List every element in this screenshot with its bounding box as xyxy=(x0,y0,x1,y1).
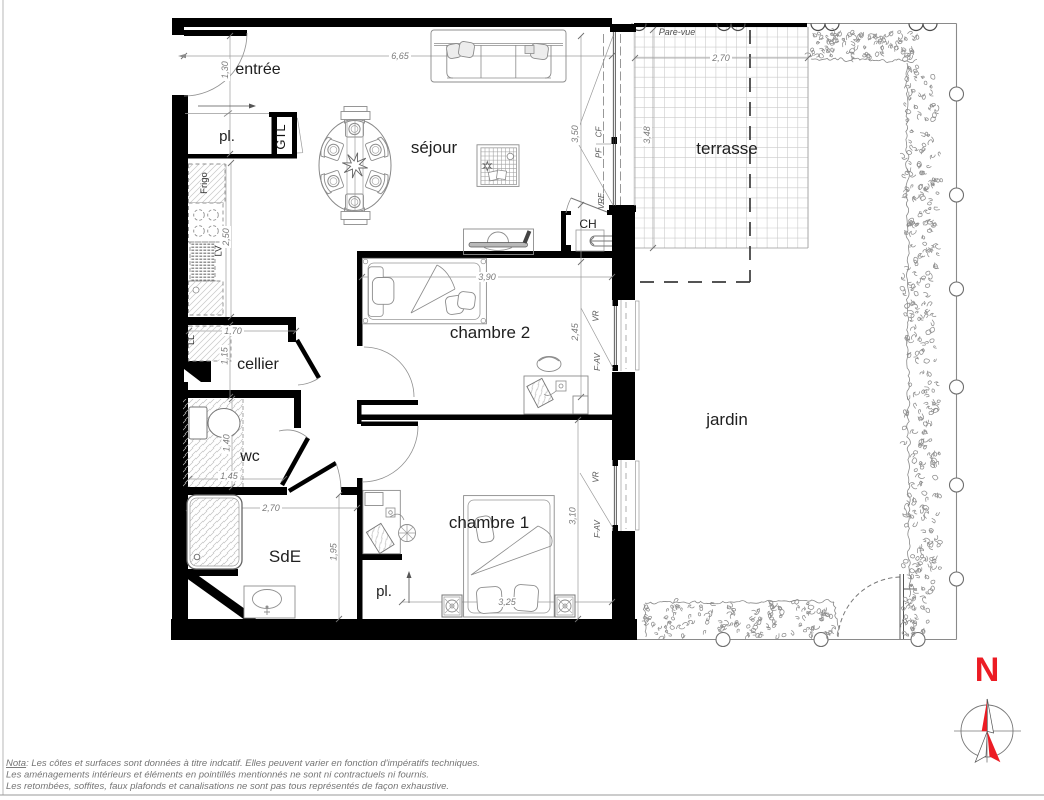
svg-text:cellier: cellier xyxy=(237,356,279,373)
svg-text:chambre 1: chambre 1 xyxy=(449,513,529,532)
svg-text:chambre 2: chambre 2 xyxy=(450,323,530,342)
svg-text:VRE: VRE xyxy=(597,192,606,209)
svg-text:2,70: 2,70 xyxy=(261,503,280,513)
svg-text:3,90: 3,90 xyxy=(478,272,496,282)
svg-text:jardin: jardin xyxy=(705,410,748,429)
svg-text:1,45: 1,45 xyxy=(220,471,239,481)
svg-text:PF: PF xyxy=(595,147,604,158)
svg-text:F-AV: F-AV xyxy=(593,519,602,537)
svg-text:N: N xyxy=(975,651,1000,689)
svg-text:CF: CF xyxy=(595,126,604,138)
svg-text:1,30: 1,30 xyxy=(220,61,230,79)
svg-text:Frigo: Frigo xyxy=(199,172,210,194)
svg-text:Les aménagements intérieurs et: Les aménagements intérieurs et éléments … xyxy=(6,770,429,781)
svg-text:pl.: pl. xyxy=(376,583,392,600)
svg-text:3,25: 3,25 xyxy=(498,597,517,607)
svg-text:2,70: 2,70 xyxy=(711,53,730,63)
svg-text:F-AV: F-AV xyxy=(593,352,602,370)
svg-text:terrasse: terrasse xyxy=(696,139,757,158)
svg-text:2,45: 2,45 xyxy=(570,322,580,342)
svg-text:SdE: SdE xyxy=(269,547,301,566)
svg-text:6,65: 6,65 xyxy=(391,51,410,61)
svg-text:Nota: Les côtes et surfaces so: Nota: Les côtes et surfaces sont données… xyxy=(6,758,480,769)
svg-text:Pare-vue: Pare-vue xyxy=(659,27,696,37)
svg-text:GTL: GTL xyxy=(273,124,288,149)
svg-text:3,48: 3,48 xyxy=(642,126,652,144)
svg-text:séjour: séjour xyxy=(411,138,458,157)
svg-text:VR: VR xyxy=(592,310,601,321)
svg-text:VR: VR xyxy=(592,471,601,482)
svg-text:LV: LV xyxy=(214,245,225,257)
svg-text:Les retombées, soffites, faux: Les retombées, soffites, faux plafonds e… xyxy=(6,781,449,792)
svg-text:1,40: 1,40 xyxy=(222,434,232,452)
svg-text:entrée: entrée xyxy=(235,61,280,78)
svg-text:3,50: 3,50 xyxy=(570,125,580,143)
svg-text:1,95: 1,95 xyxy=(329,542,339,561)
svg-text:3,10: 3,10 xyxy=(568,507,578,525)
svg-text:1,70: 1,70 xyxy=(224,326,242,336)
svg-text:wc: wc xyxy=(239,448,260,465)
svg-text:CH: CH xyxy=(579,217,596,231)
svg-text:pl.: pl. xyxy=(219,128,235,145)
svg-text:LL: LL xyxy=(186,335,196,345)
svg-text:2,50: 2,50 xyxy=(221,228,231,247)
svg-text:1,15: 1,15 xyxy=(220,346,230,365)
